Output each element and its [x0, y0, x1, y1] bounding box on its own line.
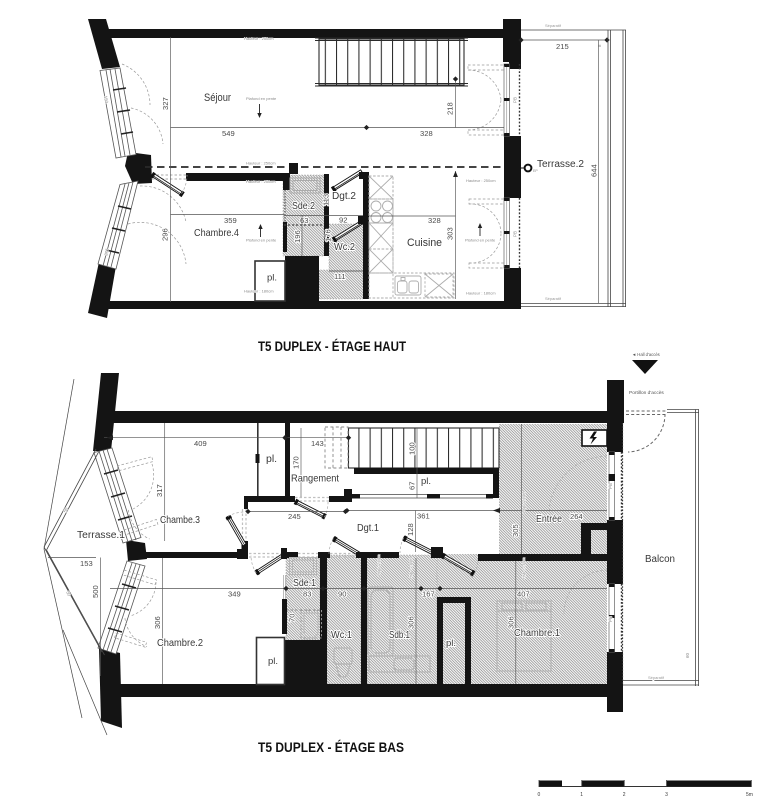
- svg-text:Hsp : 2.50m: Hsp : 2.50m: [521, 491, 526, 513]
- svg-text:Plafond en pente: Plafond en pente: [246, 238, 277, 243]
- svg-text:167: 167: [422, 590, 435, 599]
- svg-text:306: 306: [407, 616, 416, 629]
- svg-text:Plafond en pente: Plafond en pente: [246, 96, 277, 101]
- svg-text:PB: PB: [608, 483, 613, 489]
- svg-text:Chambre.1: Chambre.1: [514, 627, 560, 639]
- svg-text:327: 327: [161, 97, 170, 110]
- svg-text:PB: PB: [608, 616, 613, 622]
- svg-text:pl.: pl.: [268, 656, 278, 667]
- svg-text:644: 644: [590, 164, 599, 177]
- svg-text:PB: PB: [513, 97, 518, 103]
- svg-text:409: 409: [194, 439, 207, 448]
- svg-text:Terrasse.1: Terrasse.1: [77, 530, 125, 541]
- svg-text:359: 359: [224, 216, 237, 225]
- svg-text:pl.: pl.: [267, 273, 277, 284]
- svg-text:Sde.2: Sde.2: [292, 201, 315, 212]
- svg-text:128: 128: [406, 523, 415, 536]
- svg-text:296: 296: [161, 228, 170, 241]
- svg-text:Hsp : 2.50m: Hsp : 2.50m: [376, 554, 381, 576]
- svg-text:PB: PB: [513, 231, 518, 237]
- svg-text:218: 218: [446, 102, 455, 115]
- svg-text:1: 1: [580, 792, 583, 798]
- svg-text:Hauteur : 250cm: Hauteur : 250cm: [246, 179, 276, 184]
- svg-text:113: 113: [322, 194, 331, 206]
- svg-text:Hsp : 2.50m: Hsp : 2.50m: [521, 557, 526, 579]
- svg-text:245: 245: [288, 512, 301, 521]
- svg-text:Hauteur : 180cm: Hauteur : 180cm: [466, 291, 496, 296]
- svg-text:303: 303: [446, 227, 455, 240]
- svg-text:Chambre.2: Chambre.2: [157, 637, 203, 649]
- svg-text:264: 264: [570, 512, 583, 521]
- svg-text:pl.: pl.: [446, 638, 456, 649]
- svg-text:Séparatif: Séparatif: [648, 675, 665, 680]
- svg-text:◄ Hall d'accès: ◄ Hall d'accès: [632, 352, 660, 357]
- svg-text:pl.: pl.: [266, 453, 277, 465]
- svg-text:Balcon: Balcon: [645, 554, 675, 565]
- svg-text:Terrasse.2: Terrasse.2: [537, 159, 584, 170]
- svg-text:2: 2: [623, 792, 626, 798]
- svg-text:Dgt.1: Dgt.1: [357, 522, 379, 534]
- svg-text:305: 305: [511, 524, 520, 537]
- svg-text:5m: 5m: [746, 792, 753, 798]
- svg-text:63: 63: [300, 216, 308, 225]
- svg-text:Chambe.3: Chambe.3: [160, 514, 200, 526]
- svg-text:92: 92: [339, 216, 347, 225]
- svg-text:90: 90: [338, 590, 346, 599]
- svg-text:176: 176: [324, 229, 333, 242]
- svg-text:T5 DUPLEX - ÉTAGE BAS: T5 DUPLEX - ÉTAGE BAS: [258, 740, 404, 755]
- svg-text:100: 100: [408, 442, 417, 455]
- svg-text:pl.: pl.: [421, 476, 431, 487]
- svg-text:361: 361: [417, 512, 430, 521]
- svg-text:Dgt.2: Dgt.2: [332, 191, 356, 202]
- svg-text:111: 111: [334, 272, 346, 281]
- svg-text:Hauteur : 250cm: Hauteur : 250cm: [246, 161, 276, 166]
- svg-text:T5 DUPLEX - ÉTAGE HAUT: T5 DUPLEX - ÉTAGE HAUT: [258, 339, 407, 354]
- svg-text:Portillon d'accès: Portillon d'accès: [629, 390, 664, 396]
- svg-text:215: 215: [556, 42, 569, 51]
- svg-text:Hauteur : 250cm: Hauteur : 250cm: [466, 178, 496, 183]
- svg-text:60: 60: [685, 652, 690, 658]
- svg-text:196: 196: [293, 230, 302, 243]
- svg-text:Chambre.4: Chambre.4: [194, 227, 239, 239]
- svg-text:Cuisine: Cuisine: [407, 237, 442, 249]
- svg-text:Séjour: Séjour: [204, 92, 231, 104]
- svg-text:Séparatif: Séparatif: [545, 23, 562, 28]
- svg-text:83: 83: [303, 590, 311, 599]
- svg-text:500: 500: [91, 585, 100, 598]
- svg-text:Plafond en pente: Plafond en pente: [465, 238, 496, 243]
- svg-text:67: 67: [408, 482, 417, 490]
- svg-text:170: 170: [292, 456, 301, 469]
- svg-text:Entrée: Entrée: [536, 513, 562, 525]
- svg-text:407: 407: [517, 590, 530, 599]
- svg-text:Sdb.1: Sdb.1: [389, 630, 410, 641]
- svg-text:328: 328: [420, 129, 433, 138]
- svg-text:306: 306: [153, 616, 162, 629]
- svg-text:143: 143: [311, 439, 324, 448]
- svg-text:0: 0: [538, 792, 541, 798]
- svg-text:3: 3: [665, 792, 668, 798]
- svg-text:Sde.1: Sde.1: [293, 578, 316, 589]
- svg-text:Hsp : 2.05m: Hsp : 2.05m: [408, 557, 413, 579]
- svg-text:317: 317: [155, 484, 164, 497]
- svg-text:549: 549: [222, 129, 235, 138]
- svg-text:Séparatif: Séparatif: [545, 296, 562, 301]
- svg-text:Wc.2: Wc.2: [334, 242, 355, 253]
- svg-text:Rangement: Rangement: [291, 473, 339, 485]
- svg-text:Hauteur : 180cm: Hauteur : 180cm: [244, 289, 274, 294]
- svg-text:70: 70: [288, 614, 297, 622]
- svg-text:328: 328: [428, 216, 441, 225]
- svg-text:153: 153: [80, 559, 93, 568]
- svg-text:Wc.1: Wc.1: [331, 630, 352, 641]
- svg-text:349: 349: [228, 590, 241, 599]
- svg-text:Hauteur : 250cm: Hauteur : 250cm: [244, 36, 274, 41]
